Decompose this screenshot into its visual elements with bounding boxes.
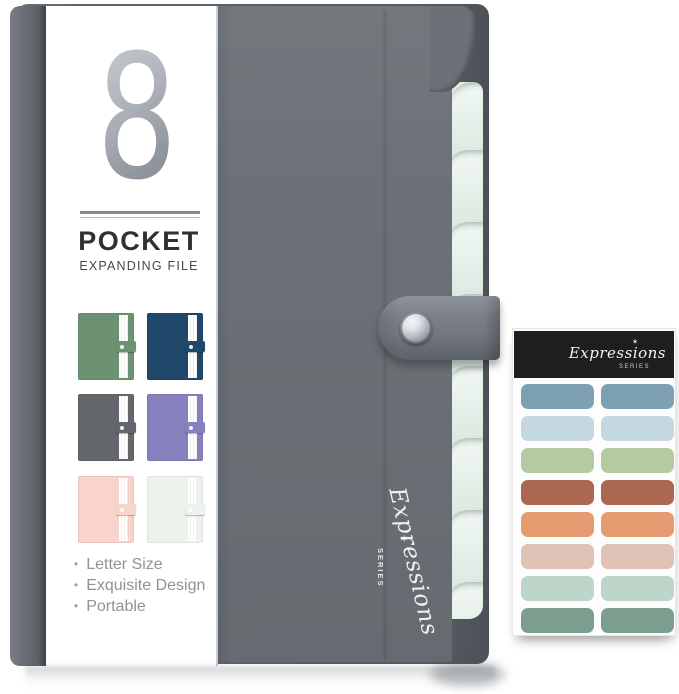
label-sticker [601, 608, 674, 633]
divider-rule-thick [80, 211, 200, 214]
swatch-clasp [185, 422, 205, 433]
brand-script-text: Expressions [383, 485, 442, 637]
divider-rule-thin [80, 217, 200, 218]
product-title: POCKET [46, 226, 216, 257]
swatch-snap-dot [189, 345, 193, 349]
swatch-snap-dot [120, 345, 124, 349]
color-swatch-white [147, 476, 203, 543]
product-subtitle: EXPANDING FILE [46, 259, 216, 273]
swatch-clasp [185, 341, 205, 352]
feature-item: Exquisite Design [74, 575, 208, 596]
brand-series-text: SERIES [376, 548, 385, 588]
label-sticker [601, 448, 674, 473]
label-sticker [601, 576, 674, 601]
label-sticker [601, 384, 674, 409]
snap-button-icon [400, 312, 432, 344]
label-sticker [521, 512, 594, 537]
label-sticker [601, 480, 674, 505]
folder-reflection [25, 666, 495, 690]
label-band: 8 POCKET EXPANDING FILE [46, 6, 216, 666]
folder-spine [10, 6, 46, 666]
feature-item: Letter Size [74, 554, 208, 575]
color-swatch-navy [147, 313, 203, 380]
label-sticker [521, 416, 594, 441]
corner-shadow [430, 662, 505, 686]
feature-item: Portable [74, 596, 208, 617]
product-image: Expressions ✶ SERIES 8 POCKET EXPANDING … [0, 0, 679, 694]
swatch-clasp [116, 341, 136, 352]
label-sticker [521, 384, 594, 409]
swatch-snap-dot [189, 426, 193, 430]
label-sticker [521, 608, 594, 633]
label-sticker [521, 480, 594, 505]
label-sticker [601, 512, 674, 537]
label-sticker [601, 416, 674, 441]
sticker-sheet: ✶ Expressions SERIES [512, 328, 676, 636]
swatch-snap-dot [120, 426, 124, 430]
color-swatch-green [78, 313, 134, 380]
label-sticker [521, 448, 594, 473]
swatch-clasp [185, 504, 205, 515]
swatch-snap-dot [120, 508, 124, 512]
color-swatch-purple [147, 394, 203, 461]
brand-series-text: SERIES [619, 364, 650, 370]
brand-script-area: Expressions [338, 492, 488, 632]
snap-strap [378, 296, 500, 360]
brand-script-text: Expressions [569, 344, 666, 362]
swatch-snap-dot [189, 508, 193, 512]
swatch-clasp [116, 422, 136, 433]
color-swatch-gray [78, 394, 134, 461]
feature-list: Letter Size Exquisite Design Portable [74, 554, 208, 617]
color-swatch-pink [78, 476, 134, 543]
star-icon: ✶ [400, 534, 408, 545]
label-sticker [521, 544, 594, 569]
sticker-sheet-header: ✶ Expressions SERIES [514, 331, 674, 378]
swatch-clasp [116, 504, 136, 515]
label-sticker [521, 576, 594, 601]
label-sticker [601, 544, 674, 569]
pocket-count-numeral: 8 [68, 32, 194, 204]
